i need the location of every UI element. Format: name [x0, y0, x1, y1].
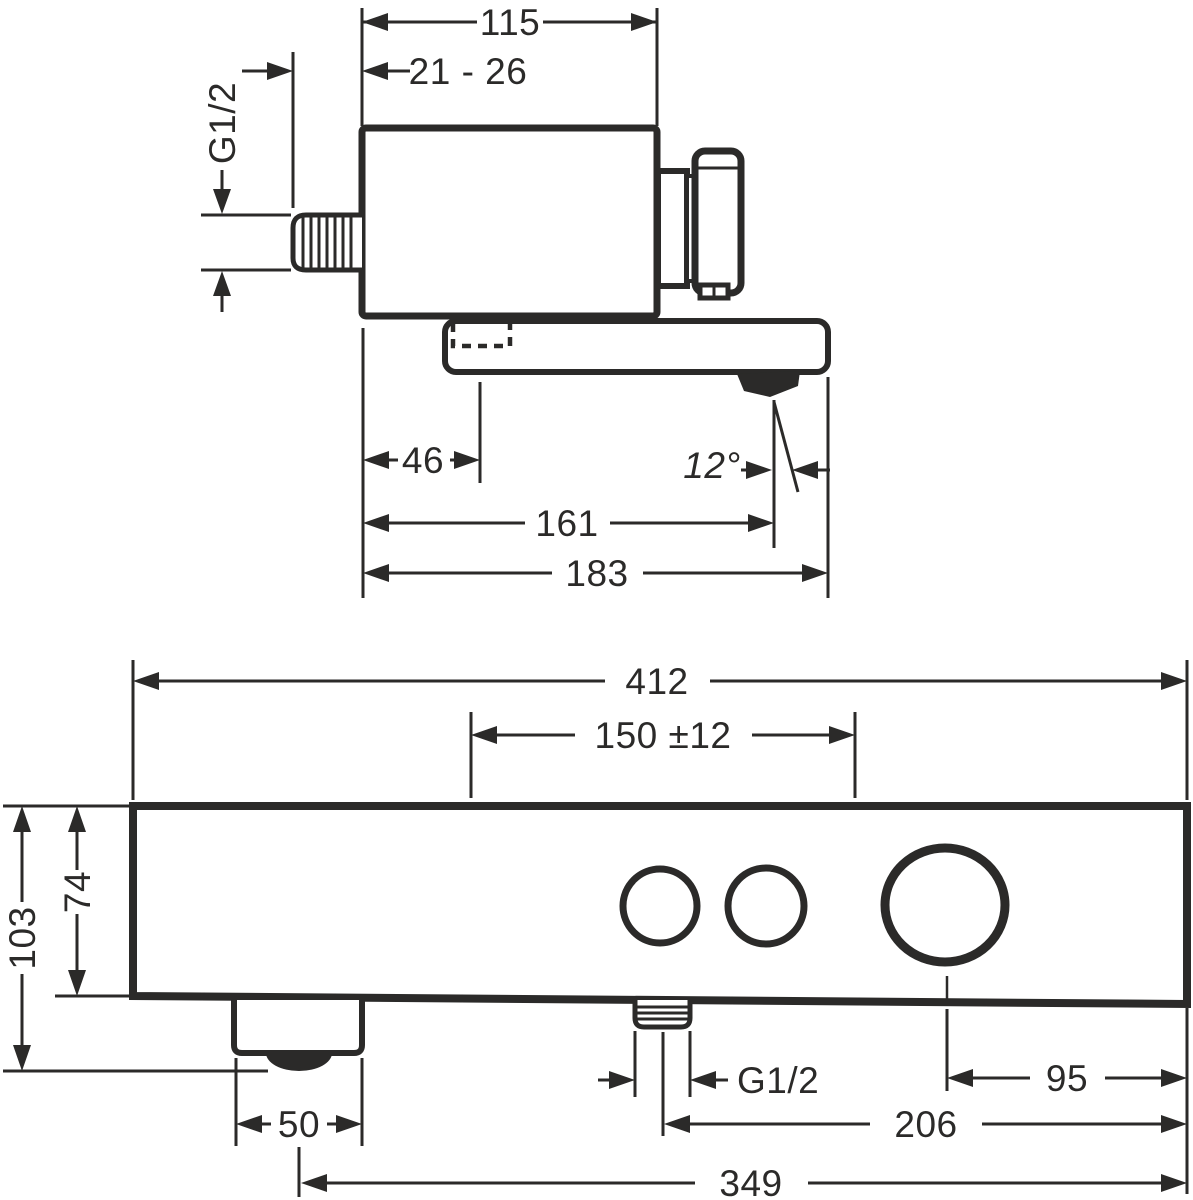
dim-label-103: 103 [2, 906, 43, 969]
handle-collar [658, 171, 687, 286]
dim-label-349: 349 [719, 1163, 782, 1200]
dim-label-12deg: 12° [683, 445, 740, 486]
dim-label-74: 74 [57, 871, 98, 913]
dim-label-g12-side: G1/2 [202, 82, 243, 164]
drawing-canvas: 115 21 - 26 G1/2 46 [0, 0, 1193, 1200]
dim-label-161: 161 [535, 503, 598, 544]
technical-drawing: 115 21 - 26 G1/2 46 [0, 0, 1193, 1200]
dim-label-115: 115 [480, 2, 541, 43]
thermostat-knob [885, 848, 1005, 962]
dim-label-95: 95 [1046, 1058, 1088, 1099]
support-foot [234, 1000, 362, 1053]
handle [695, 151, 741, 293]
nipple-threads [303, 217, 351, 268]
dim-label-206: 206 [894, 1104, 957, 1145]
dim-label-150: 150 ±12 [595, 715, 732, 756]
dim-label-183: 183 [565, 553, 628, 594]
valve-body-side [362, 128, 657, 316]
dim-label-g12-front: G1/2 [737, 1060, 819, 1101]
dim-label-21-26: 21 - 26 [409, 51, 528, 92]
select-button-1 [623, 869, 697, 943]
dim-label-412: 412 [625, 661, 688, 702]
dim-label-50: 50 [278, 1104, 320, 1145]
dim-label-46: 46 [402, 440, 444, 481]
select-button-2 [728, 868, 804, 944]
